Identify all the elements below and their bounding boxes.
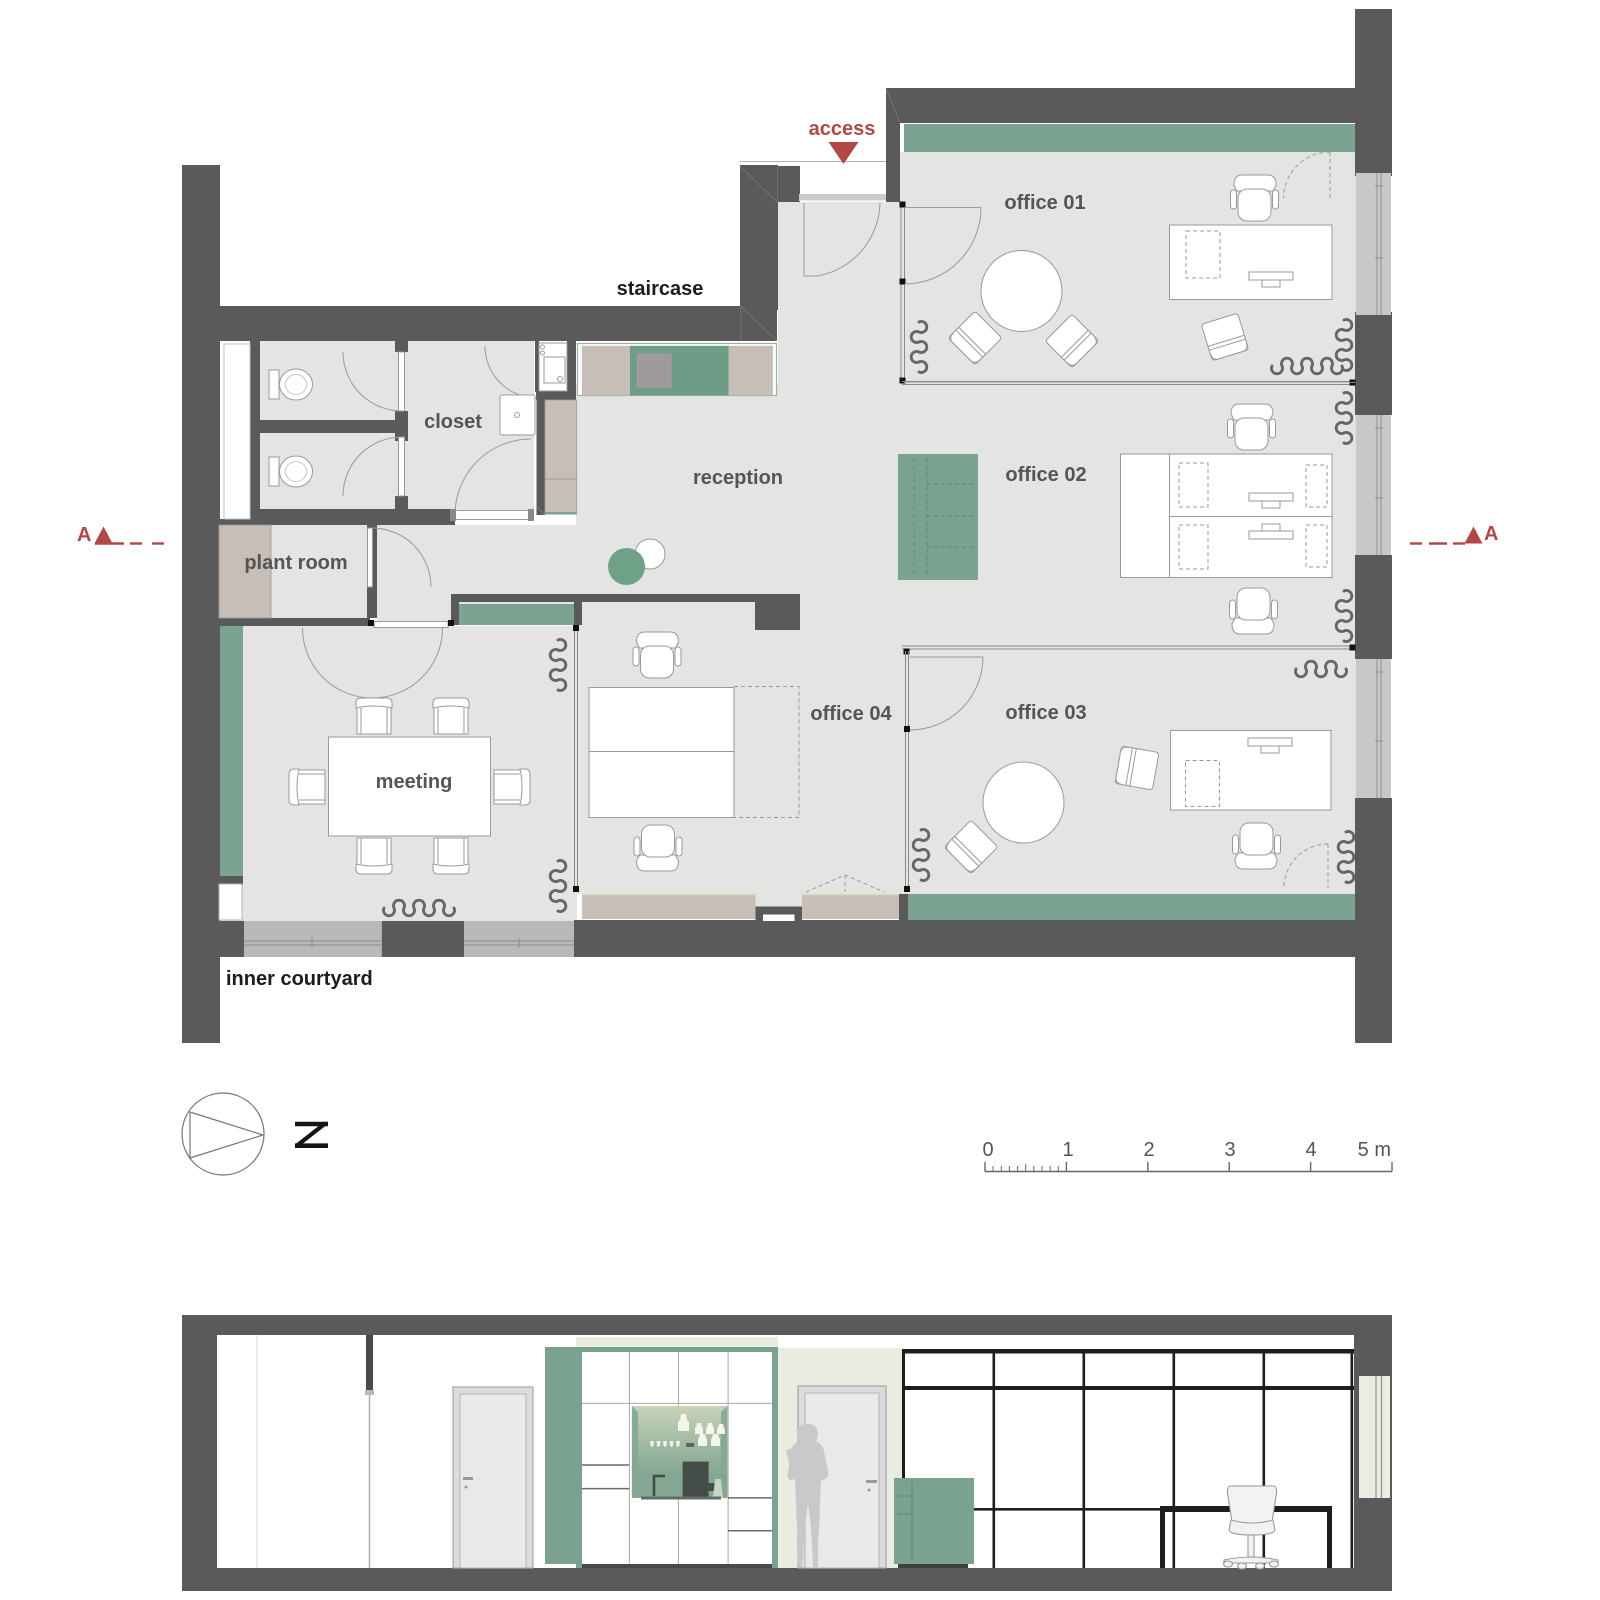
svg-text:staircase: staircase — [617, 278, 704, 300]
svg-text:4: 4 — [1305, 1139, 1316, 1161]
svg-text:office 03: office 03 — [1005, 702, 1086, 724]
svg-text:5 m: 5 m — [1358, 1139, 1391, 1161]
svg-text:2: 2 — [1143, 1139, 1154, 1161]
svg-text:plant room: plant room — [244, 552, 347, 574]
svg-text:inner courtyard: inner courtyard — [226, 968, 373, 990]
svg-text:office 01: office 01 — [1004, 192, 1085, 214]
svg-text:A: A — [77, 524, 91, 546]
svg-text:reception: reception — [693, 467, 783, 489]
svg-text:1: 1 — [1062, 1139, 1073, 1161]
svg-text:office 04: office 04 — [810, 703, 892, 725]
svg-text:A: A — [1484, 523, 1498, 545]
svg-text:access: access — [809, 118, 876, 140]
svg-text:meeting: meeting — [376, 771, 453, 793]
svg-text:3: 3 — [1224, 1139, 1235, 1161]
svg-text:closet: closet — [424, 411, 482, 433]
svg-text:0: 0 — [982, 1139, 993, 1161]
svg-text:office 02: office 02 — [1005, 464, 1086, 486]
